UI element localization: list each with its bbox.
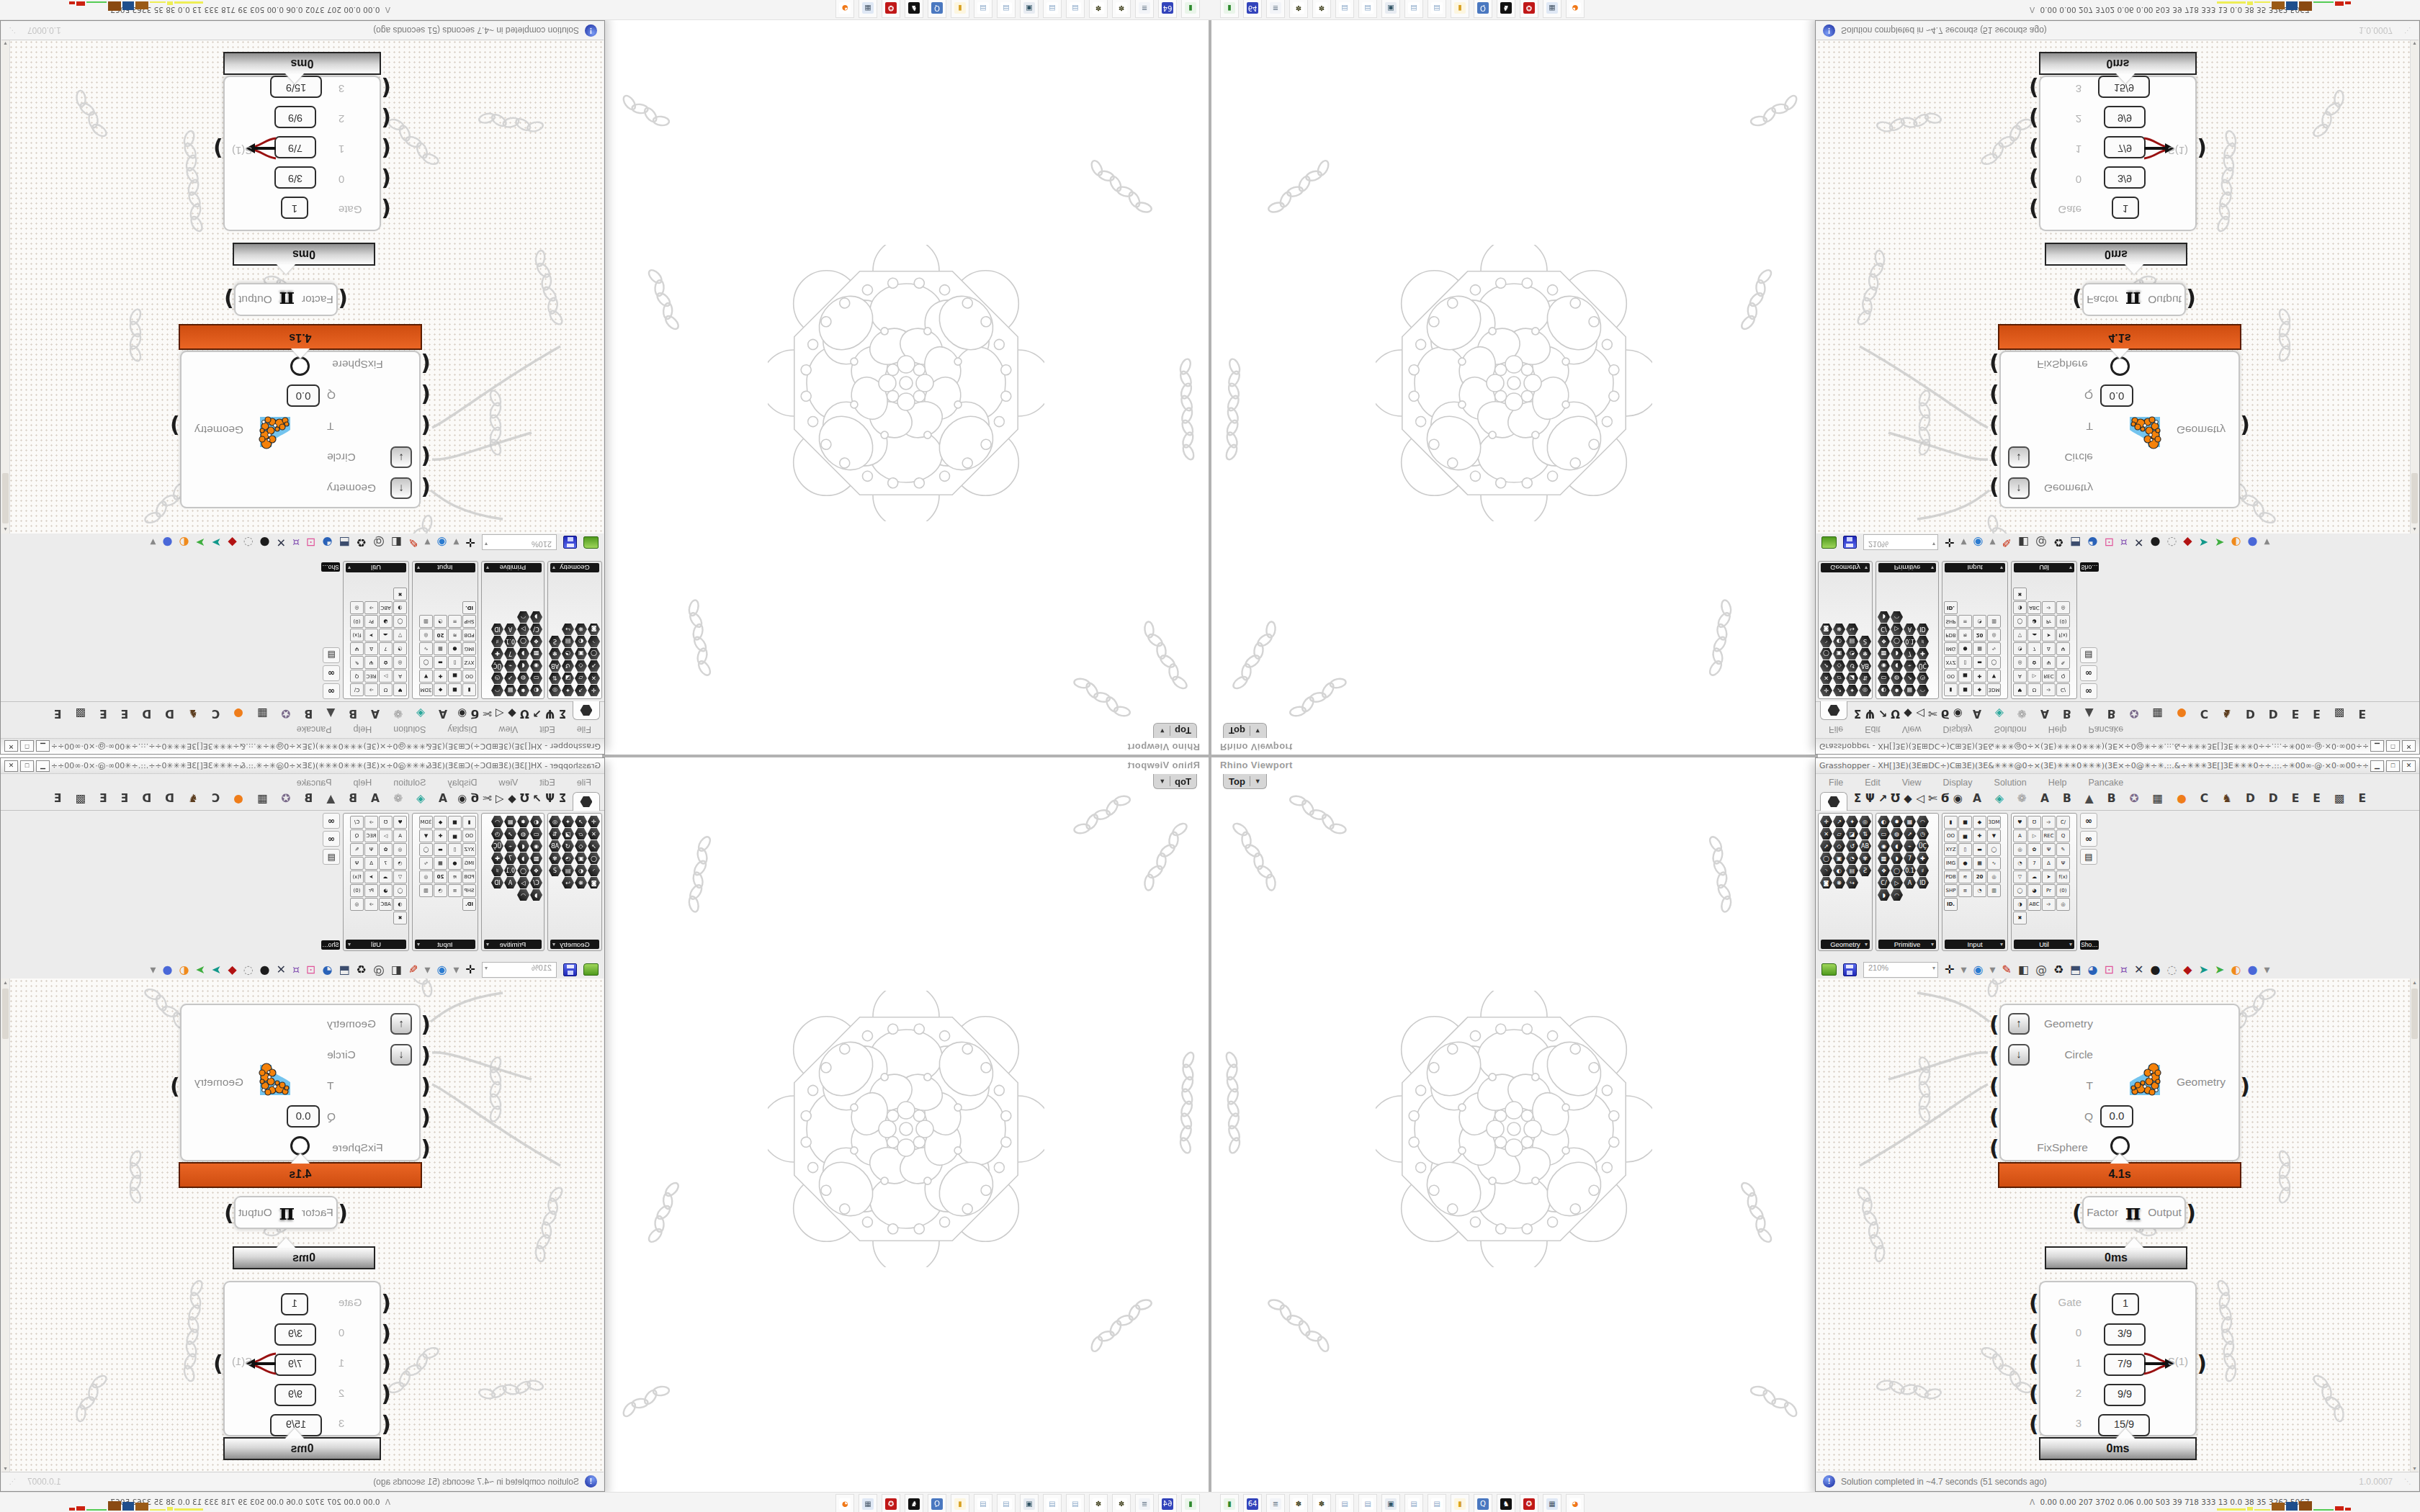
component-icon[interactable]: ◪ (1846, 672, 1858, 684)
component-icon[interactable]: ☁ (2027, 870, 2041, 883)
component-icon[interactable]: ◔ (562, 648, 574, 660)
gem-icon[interactable]: ◆ (2183, 964, 2192, 976)
component-icon[interactable]: ✾ (549, 648, 561, 660)
panel-label-show[interactable]: Sho… (321, 562, 340, 572)
component-icon[interactable]: 3DM (419, 683, 433, 696)
component-icon[interactable]: (0) (2056, 884, 2070, 897)
component-icon[interactable]: ◝ (1820, 636, 1832, 647)
component-tab[interactable]: E (2292, 707, 2300, 720)
component-icon[interactable]: ▷ (517, 624, 529, 635)
lamp-icon[interactable]: ¤ (292, 537, 300, 549)
component-icon[interactable]: ➩ (364, 816, 378, 829)
component-icon[interactable]: ✚ (1973, 829, 1986, 842)
value-field[interactable]: 7/9 (2104, 1354, 2146, 1376)
component-icon[interactable]: ◖ (1891, 840, 1903, 852)
screen-icon[interactable]: ⬒ (339, 537, 350, 549)
sketch-pen-icon[interactable]: ✎ (2002, 537, 2011, 549)
component-icon[interactable]: ◎ (1859, 685, 1871, 696)
component-tab[interactable]: ↗ (1878, 707, 1888, 720)
component-icon[interactable]: ➚ (588, 840, 600, 852)
component-icon[interactable]: ◔ (1973, 615, 1986, 628)
component-tab[interactable]: A (371, 792, 380, 805)
component-icon[interactable]: ▣ (1833, 648, 1845, 660)
gate-component[interactable]: Gate 0 1 2 3 1 3/9 7/9 9/9 15/9 (2039, 76, 2197, 231)
input-port-gate[interactable] (2029, 196, 2039, 222)
scrollbar-thumb[interactable] (2, 989, 9, 1039)
penguin-icon[interactable]: ♞ (1497, 0, 1515, 18)
component-icon[interactable]: ▽ (2013, 629, 2027, 642)
panel-label-geometry[interactable]: Geometry▾ (1821, 940, 1870, 949)
component-icon[interactable]: ▷ (2027, 829, 2041, 842)
zoom-extents-icon[interactable]: ✛ (1945, 537, 1954, 549)
zoom-combo[interactable]: 210%▾ (482, 962, 557, 978)
component-icon[interactable]: ➚ (1904, 672, 1916, 684)
component-tab[interactable]: Ψ (1865, 792, 1875, 805)
menu-item-file[interactable]: File (577, 778, 591, 788)
panel-label-geometry[interactable]: Geometry▾ (550, 940, 599, 949)
component-icon[interactable]: C/ (350, 816, 364, 829)
upload-geometry-button[interactable] (390, 477, 412, 499)
input-port-circle[interactable] (421, 1043, 431, 1068)
input-port-q[interactable] (1989, 1104, 1999, 1130)
notepad-icon[interactable]: ▤ (1404, 1494, 1423, 1512)
firefox-icon[interactable]: ◕ (835, 1494, 854, 1512)
component-icon[interactable]: AB (1859, 660, 1871, 672)
component-icon[interactable]: ▣ (1833, 852, 1845, 864)
component-icon[interactable]: ▭ (530, 828, 542, 840)
sketch-pen-icon[interactable]: ✎ (2002, 964, 2011, 976)
component-icon[interactable]: ◐ (575, 636, 587, 647)
component-tab[interactable]: ▲ (326, 792, 335, 805)
component-tab[interactable]: A (2040, 707, 2049, 720)
sphere-orange-icon[interactable]: ◐ (2231, 537, 2241, 549)
seed-icon[interactable]: ✽ (1312, 0, 1331, 18)
component-tab[interactable]: Σ (558, 707, 567, 720)
component-icon[interactable]: ✛ (1820, 816, 1832, 827)
scroll-up-arrow[interactable]: ▲ (2411, 526, 2419, 534)
component-icon[interactable]: Δ (2042, 857, 2056, 870)
component-icon[interactable]: SHP (1944, 615, 1958, 628)
scrollbar-thumb[interactable] (2, 473, 9, 523)
component-icon[interactable]: ▦ (1904, 685, 1916, 696)
fixsphere-component[interactable]: Geometry Circle T Q FixSphere 0.0 Geomet… (180, 1004, 421, 1161)
component-tab[interactable]: Ψ (545, 792, 555, 805)
input-port-fixsphere[interactable] (1989, 1135, 1999, 1161)
gate-value-field[interactable]: 1 (2112, 1293, 2139, 1315)
finder-icon[interactable]: ◕ (323, 964, 333, 976)
component-icon[interactable]: ✖ (2013, 588, 2027, 600)
component-tab[interactable]: ◈ (416, 707, 425, 720)
folder-icon[interactable]: ▮ (1451, 1494, 1469, 1512)
component-icon[interactable]: ➩ (2042, 816, 2056, 829)
component-icon[interactable]: ÜÇ (491, 840, 503, 852)
component-icon[interactable]: C/ (350, 683, 364, 696)
close-button[interactable]: ✕ (2402, 741, 2416, 752)
component-icon[interactable]: ◔ (2013, 857, 2027, 870)
menu-item-display[interactable]: Display (1943, 725, 1973, 735)
grasshopper-canvas[interactable]: Geometry Circle T Q FixSphere 0.0 Geomet… (1, 40, 604, 534)
input-port-factor[interactable] (338, 286, 348, 312)
component-icon[interactable]: REC (2042, 670, 2056, 683)
component-tab[interactable]: ▩ (2334, 707, 2345, 720)
component-icon[interactable]: ID (491, 877, 503, 888)
green-drive-icon[interactable]: ▮ (1181, 0, 1200, 18)
component-icon[interactable]: ◎ (549, 816, 561, 827)
canvas-scrollbar[interactable]: ▲ ▼ (2410, 978, 2419, 1472)
tab-params[interactable] (1820, 792, 1847, 811)
sphere-orange-icon[interactable]: ◐ (179, 964, 189, 976)
component-icon[interactable]: AB (1859, 840, 1871, 852)
component-tab[interactable]: C (212, 707, 220, 720)
panel-label-primitive[interactable]: Primitive▾ (1878, 563, 1936, 572)
panel-label-input[interactable]: Input▾ (415, 563, 475, 572)
notepad-icon[interactable]: ▤ (974, 0, 992, 18)
component-icon[interactable]: f(x) (350, 870, 364, 883)
help-box-icon[interactable]: ⊡ (2104, 964, 2113, 976)
component-icon[interactable]: ◯ (1987, 656, 2001, 669)
input-port-t[interactable] (421, 1074, 431, 1099)
minimize-button[interactable]: ▁ (2370, 760, 2384, 772)
canvas-scrollbar[interactable]: ▲ ▼ (2410, 40, 2419, 534)
panel-label-primitive[interactable]: Primitive▾ (484, 563, 542, 572)
component-icon[interactable]: ● (1958, 642, 1972, 655)
component-tab[interactable]: E (121, 707, 129, 720)
component-icon[interactable]: ◔ (1846, 648, 1858, 660)
ribbon-icon[interactable]: ✕ (2134, 964, 2143, 976)
component-icon[interactable]: AB (549, 840, 561, 852)
component-tab[interactable]: D (2269, 707, 2278, 720)
tab-params[interactable] (1820, 701, 1847, 720)
maximize-button[interactable]: □ (2386, 760, 2400, 772)
component-icon[interactable]: ◎ (1859, 816, 1871, 827)
component-icon[interactable]: ➩ (2042, 898, 2056, 911)
goggles-icon[interactable]: ∞ (2080, 813, 2097, 829)
dropdown-caret-icon[interactable]: ▾ (425, 964, 431, 976)
menu-item-view[interactable]: View (1902, 725, 1922, 735)
component-icon[interactable]: ◕ (379, 884, 393, 897)
component-icon[interactable]: ● (448, 857, 462, 870)
camera-icon[interactable]: ● (2150, 537, 2160, 549)
component-icon[interactable]: ➤ (2042, 870, 2056, 883)
component-icon[interactable]: ◷ (1917, 672, 1929, 684)
component-icon[interactable]: ◠ (491, 685, 503, 696)
component-icon[interactable]: ◯ (588, 852, 600, 864)
download-circle-button[interactable] (390, 1044, 412, 1066)
open-file-icon[interactable] (583, 963, 599, 976)
component-icon[interactable]: ✎ (2056, 843, 2070, 856)
component-icon[interactable]: ▮ (462, 816, 476, 829)
pin-teal-icon[interactable]: ➤ (212, 964, 221, 976)
component-icon[interactable]: ◯ (517, 636, 529, 647)
component-icon[interactable]: Ψ (2042, 843, 2056, 856)
component-tab[interactable]: C (212, 792, 220, 805)
input-port-geometry[interactable] (1989, 474, 1999, 500)
component-icon[interactable]: Δ (364, 857, 378, 870)
component-icon[interactable]: ◉ (530, 840, 542, 852)
easel-icon[interactable]: ▤ (2080, 647, 2097, 663)
component-icon[interactable]: A (1904, 624, 1916, 635)
penguin-icon[interactable]: ♞ (905, 0, 923, 18)
component-icon[interactable]: Δ (2042, 642, 2056, 655)
pin-green-icon[interactable]: ➤ (2215, 537, 2224, 549)
component-icon[interactable]: ✿ (379, 843, 393, 856)
goggles-icon[interactable]: ∞ (323, 665, 340, 681)
component-icon[interactable]: 0.1 (1904, 865, 1916, 876)
component-icon[interactable]: (0) (350, 884, 364, 897)
dropdown-caret-icon[interactable]: ▾ (2264, 537, 2269, 549)
sphere-blue-icon[interactable]: ● (2247, 964, 2257, 976)
dropdown-caret-icon[interactable]: ▾ (151, 964, 156, 976)
red-emblem-icon[interactable]: ✪ (1520, 0, 1538, 18)
component-icon[interactable]: ⇅ (1859, 828, 1871, 840)
input-port-gate[interactable] (381, 1290, 391, 1316)
gate-component[interactable]: Gate 0 1 2 3 1 3/9 7/9 9/9 15/9 (223, 1281, 381, 1436)
value-field[interactable]: 9/9 (274, 106, 316, 128)
component-tab[interactable]: E (54, 707, 62, 720)
resize-grip[interactable]: ⋱ (2404, 27, 2412, 35)
value-field[interactable]: 3/9 (2104, 166, 2146, 189)
component-icon[interactable]: ↪ (1846, 877, 1858, 888)
component-icon[interactable]: ➩ (364, 601, 378, 614)
component-icon[interactable]: ◪ (562, 828, 574, 840)
pi-component[interactable]: Factor π Output (2082, 1196, 2186, 1229)
remote-icon[interactable]: @ (373, 964, 385, 976)
folder-icon[interactable]: ▮ (951, 1494, 969, 1512)
rings-icon[interactable]: ◌ (243, 964, 254, 976)
input-port-3[interactable] (2029, 75, 2039, 101)
output-port-geometry[interactable] (170, 1074, 180, 1099)
component-icon[interactable]: ID (1917, 624, 1929, 635)
component-tab[interactable]: ▦ (257, 792, 268, 805)
component-icon[interactable]: ❋ (575, 877, 587, 888)
component-tab[interactable]: Σ (1853, 707, 1862, 720)
component-icon[interactable]: ● (1958, 857, 1972, 870)
notepad-icon[interactable]: ▤ (1335, 1494, 1354, 1512)
sphere-blue-icon[interactable]: ● (2247, 537, 2257, 549)
component-icon[interactable]: 20 (434, 629, 447, 642)
component-tab[interactable]: E (99, 792, 107, 805)
component-tab[interactable]: ▲ (2085, 792, 2094, 805)
component-tab[interactable]: C (2200, 707, 2208, 720)
input-port-0[interactable] (2029, 1320, 2039, 1346)
component-icon[interactable]: ▦ (434, 857, 447, 870)
scrollbar-thumb[interactable] (2411, 473, 2418, 523)
component-icon[interactable]: ◐ (575, 865, 587, 876)
component-icon[interactable]: ◎ (1987, 870, 2001, 883)
component-icon[interactable]: 7 (1904, 648, 1916, 660)
component-icon[interactable]: Ƨ (549, 865, 561, 876)
resize-grip[interactable]: ⋱ (8, 27, 16, 35)
component-icon[interactable]: PDB (1944, 629, 1958, 642)
component-icon[interactable]: ▼ (419, 829, 433, 842)
scroll-up-arrow[interactable]: ▲ (1, 978, 9, 986)
rings-icon[interactable]: ◌ (243, 537, 254, 549)
input-port-1[interactable] (381, 1351, 391, 1377)
scroll-icon[interactable]: ≣ (1266, 0, 1285, 18)
input-port-t[interactable] (421, 413, 431, 438)
component-icon[interactable]: ⌁ (1904, 660, 1916, 672)
component-icon[interactable]: ↺ (562, 660, 574, 672)
component-tab[interactable]: ▦ (257, 707, 268, 720)
scroll-icon[interactable]: ≣ (1135, 0, 1154, 18)
component-icon[interactable]: ✚ (434, 829, 447, 842)
value-field[interactable]: 9/9 (2104, 106, 2146, 128)
component-icon[interactable]: ✿ (2027, 843, 2041, 856)
save-file-icon[interactable] (1843, 536, 1857, 549)
component-icon[interactable]: ✸ (517, 685, 529, 696)
component-icon[interactable]: ✛ (1820, 685, 1832, 696)
input-port-3[interactable] (381, 75, 391, 101)
component-icon[interactable]: ◠ (517, 611, 529, 623)
component-icon[interactable]: ➤ (364, 629, 378, 642)
component-icon[interactable]: 20 (1973, 629, 1986, 642)
component-tab[interactable]: E (121, 792, 129, 805)
component-icon[interactable]: ✾ (1859, 852, 1871, 864)
component-tab[interactable]: Ψ (545, 707, 555, 720)
floppy-64-icon[interactable]: 64 (1158, 0, 1177, 18)
menu-item-pancake[interactable]: Pancake (297, 778, 332, 788)
component-icon[interactable]: ◗ (1891, 852, 1903, 864)
component-icon[interactable]: ◖ (1891, 660, 1903, 672)
zoom-combo[interactable]: 210%▾ (1863, 535, 1938, 551)
notepad-icon[interactable]: ▤ (997, 1494, 1016, 1512)
q-value-field[interactable]: 0.0 (287, 384, 320, 407)
scroll-down-arrow[interactable]: ▼ (2411, 40, 2419, 48)
panel-label-show[interactable]: Sho… (2080, 940, 2099, 950)
component-icon[interactable]: ◝ (588, 636, 600, 647)
component-icon[interactable]: ✾ (549, 852, 561, 864)
sketch-pen-icon[interactable]: ✎ (408, 964, 418, 976)
component-tab[interactable]: ◈ (1995, 792, 2004, 805)
upload-geometry-button[interactable] (390, 1013, 412, 1035)
preview-eye-icon[interactable]: ◉ (1973, 964, 1983, 976)
panel-label-primitive[interactable]: Primitive▾ (484, 940, 542, 949)
component-icon[interactable]: OO (1944, 829, 1958, 842)
component-icon[interactable]: ◔ (1846, 852, 1858, 864)
pi-component[interactable]: Factor π Output (2082, 283, 2186, 316)
component-icon[interactable]: ◯ (393, 884, 407, 897)
component-icon[interactable]: A (504, 877, 516, 888)
component-tab[interactable]: D (2246, 792, 2255, 805)
component-icon[interactable]: ✦ (1846, 816, 1858, 827)
component-tab[interactable]: ◈ (1995, 707, 2004, 720)
component-tab[interactable]: B (349, 792, 357, 805)
component-icon[interactable]: XYZ (462, 656, 476, 669)
component-icon[interactable]: OO (462, 670, 476, 683)
component-tab[interactable]: ▦ (2153, 792, 2164, 805)
component-icon[interactable]: ◇ (575, 840, 587, 852)
component-tab[interactable]: A (2040, 792, 2049, 805)
component-tab[interactable]: ▩ (75, 707, 86, 720)
input-port-2[interactable] (381, 1381, 391, 1407)
remote-icon[interactable]: @ (373, 537, 385, 549)
component-icon[interactable]: ▷ (2027, 670, 2041, 683)
component-icon[interactable]: ▩ (530, 648, 542, 660)
exit-panel-icon[interactable]: ◧ (391, 964, 402, 976)
component-icon[interactable]: ■ (448, 683, 462, 696)
component-tab[interactable]: ◁ (1916, 707, 1924, 720)
finder-icon[interactable]: ◕ (2087, 964, 2097, 976)
component-icon[interactable]: ▯ (1958, 656, 1972, 669)
component-icon[interactable]: ↺ (1846, 840, 1858, 852)
component-icon[interactable]: ◎ (350, 601, 364, 614)
component-icon[interactable]: ◆ (1973, 816, 1986, 829)
output-port-s1[interactable] (2197, 1351, 2207, 1377)
component-icon[interactable]: ID. (1944, 898, 1958, 911)
sphere-blue-icon[interactable]: ● (163, 964, 173, 976)
component-icon[interactable]: ◔ (393, 642, 407, 655)
seed-icon[interactable]: ✽ (1112, 0, 1131, 18)
component-icon[interactable]: ↗ (1833, 685, 1845, 696)
component-icon[interactable]: ▥ (419, 884, 433, 897)
component-icon[interactable]: ✚ (1917, 648, 1929, 660)
grasshopper-canvas[interactable]: Geometry Circle T Q FixSphere 0.0 Geomet… (1, 978, 604, 1472)
maximize-button[interactable]: □ (2386, 741, 2400, 752)
grasshopper-titlebar[interactable]: Grasshopper - XH[]3E)(3E⊞DC÷)C⊞3E)(3E&✳✳… (1, 758, 604, 774)
component-icon[interactable]: Pr (2042, 884, 2056, 897)
component-icon[interactable]: ▅ (448, 670, 462, 683)
component-icon[interactable]: A (2013, 829, 2027, 842)
component-icon[interactable]: ▼ (1987, 670, 2001, 683)
component-icon[interactable]: ↪ (562, 877, 574, 888)
component-icon[interactable]: PDB (462, 870, 476, 883)
component-icon[interactable]: Ψ (2056, 642, 2070, 655)
component-tab[interactable]: ✄ (1928, 792, 1937, 805)
component-icon[interactable]: ✦ (1846, 685, 1858, 696)
component-tab[interactable]: B (2107, 792, 2116, 805)
component-icon[interactable]: ✚ (491, 648, 503, 660)
easel-icon[interactable]: ▤ (323, 647, 340, 663)
value-field[interactable]: 9/9 (2104, 1384, 2146, 1406)
component-icon[interactable]: ⇅ (549, 828, 561, 840)
seed-icon[interactable]: ✽ (1289, 1494, 1308, 1512)
component-icon[interactable]: ✚ (1973, 670, 1986, 683)
sphere-blue-icon[interactable]: ● (163, 537, 173, 549)
component-tab[interactable]: D (165, 792, 174, 805)
component-icon[interactable]: C/ (2056, 816, 2070, 829)
component-icon[interactable]: ◪ (562, 672, 574, 684)
save-file-icon[interactable] (1843, 963, 1857, 976)
component-icon[interactable]: ◝ (1820, 865, 1832, 876)
component-icon[interactable]: C/ (2056, 683, 2070, 696)
component-icon[interactable]: ♥ (393, 683, 407, 696)
component-icon[interactable]: ⌁ (1904, 840, 1916, 852)
component-icon[interactable]: ✕ (588, 828, 600, 840)
component-icon[interactable]: ABC (2027, 898, 2041, 911)
component-tab[interactable]: ▲ (326, 707, 335, 720)
component-tab[interactable]: ◆ (1904, 707, 1912, 720)
component-icon[interactable]: ▦ (504, 685, 516, 696)
component-tab[interactable]: Ϭ (470, 707, 479, 720)
component-tab[interactable]: E (2359, 707, 2367, 720)
component-icon[interactable]: ▭ (1878, 828, 1890, 840)
calculator-icon[interactable]: ▦ (859, 1494, 877, 1512)
component-icon[interactable]: 0.1 (504, 636, 516, 647)
component-icon[interactable]: ▦ (1973, 857, 1986, 870)
menu-item-help[interactable]: Help (354, 725, 372, 735)
component-icon[interactable]: Ʊ (2027, 683, 2041, 696)
component-icon[interactable]: A (1904, 877, 1916, 888)
component-icon[interactable]: ▦ (1904, 816, 1916, 827)
component-icon[interactable]: ÜÇ (1917, 840, 1929, 852)
value-field[interactable]: 3/9 (2104, 1323, 2146, 1346)
component-icon[interactable]: ID. (462, 601, 476, 614)
gem-icon[interactable]: ◆ (228, 964, 236, 976)
component-icon[interactable]: ∿ (419, 642, 433, 655)
tab-params[interactable] (573, 792, 600, 811)
component-icon[interactable]: Ψ (2056, 857, 2070, 870)
component-icon[interactable]: ▱ (1833, 672, 1845, 684)
